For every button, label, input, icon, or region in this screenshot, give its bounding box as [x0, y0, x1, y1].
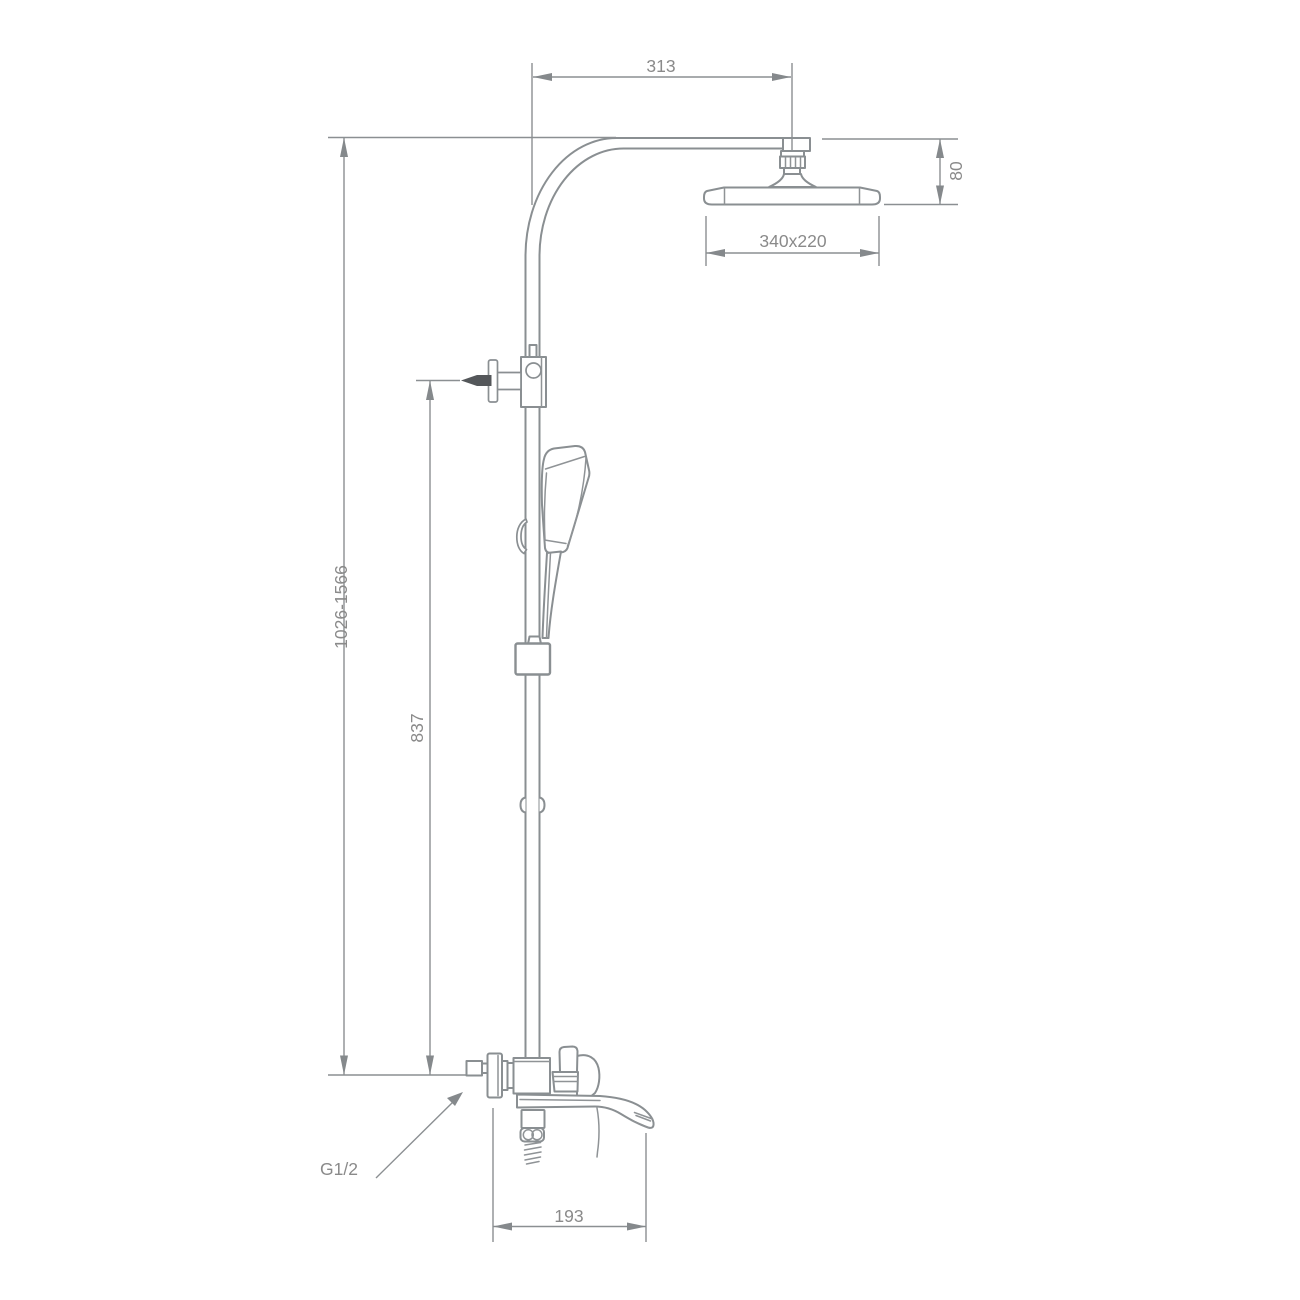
riser-pipe-and-arm — [521, 138, 811, 1058]
leader-arrowhead — [447, 1092, 463, 1106]
hand-shower-handle — [543, 552, 562, 639]
dim-313-arrow-left — [533, 73, 552, 81]
riser-pipe-outline — [526, 138, 811, 1058]
spout-top-line — [520, 1100, 600, 1101]
hand-shower — [542, 446, 590, 638]
dim-head-size: 340x220 — [706, 216, 879, 266]
mixer-lever — [560, 1047, 578, 1073]
dim-80-arrow-top — [936, 139, 944, 158]
dim-spout-reach-label: 193 — [554, 1206, 583, 1226]
dim-80-arrow-bottom — [936, 186, 944, 205]
dim-diverter-height: 837 — [328, 381, 466, 1076]
dim-340-arrow-left — [706, 249, 725, 257]
mixer-flange — [488, 1054, 503, 1098]
dim-spout-reach: 193 — [493, 1108, 646, 1242]
pipe-coupling-right — [540, 798, 545, 813]
rain-shower-head — [704, 188, 880, 205]
slider-lock — [461, 345, 546, 407]
thread-label: G1/2 — [320, 1159, 358, 1179]
dim-arm-offset-label: 313 — [646, 56, 675, 76]
dim-193-arrow-left — [493, 1223, 512, 1231]
dim-height-arrow-bottom — [340, 1056, 348, 1076]
dim-column-height-label: 1026-1566 — [331, 565, 351, 649]
dim-837-arrow-top — [426, 381, 434, 401]
spout-trailing-edge — [597, 1108, 599, 1157]
shower-system-drawing: 313 80 340x220 1026-1566 837 G1/2 — [0, 0, 1300, 1300]
leader-line — [376, 1101, 454, 1178]
dim-diverter-height-label: 837 — [407, 713, 427, 742]
diverter-rod — [497, 373, 521, 390]
wall-union-stub — [467, 1061, 483, 1076]
shower-head-neck — [769, 174, 816, 187]
holder-block — [516, 644, 551, 675]
leader-thread: G1/2 — [320, 1092, 463, 1179]
dim-313-arrow-right — [772, 73, 791, 81]
mixer-body — [514, 1058, 551, 1094]
pipe-coupling-left — [521, 798, 526, 813]
diverter-handle-tip — [461, 375, 492, 386]
dim-arm-offset: 313 — [532, 56, 792, 205]
hose-connector-block — [522, 1110, 545, 1128]
dim-837-arrow-bottom — [426, 1056, 434, 1076]
dim-313-ext-lines — [532, 63, 792, 205]
overhead-shower — [704, 151, 880, 205]
drawing-canvas: 313 80 340x220 1026-1566 837 G1/2 — [0, 0, 1300, 1300]
dim-head-size-label: 340x220 — [759, 231, 826, 251]
dim-column-height: 1026-1566 — [328, 138, 616, 1076]
dim-head-drop-label: 80 — [946, 161, 966, 181]
dim-193-arrow-right — [627, 1223, 646, 1231]
mixer-body-bulge — [577, 1055, 599, 1098]
slider-knob-ring — [526, 363, 541, 378]
mixer-valve — [467, 1047, 654, 1165]
dim-height-arrow-top — [340, 138, 348, 158]
dim-340-arrow-right — [860, 249, 879, 257]
hose-thread-coils — [525, 1143, 542, 1165]
